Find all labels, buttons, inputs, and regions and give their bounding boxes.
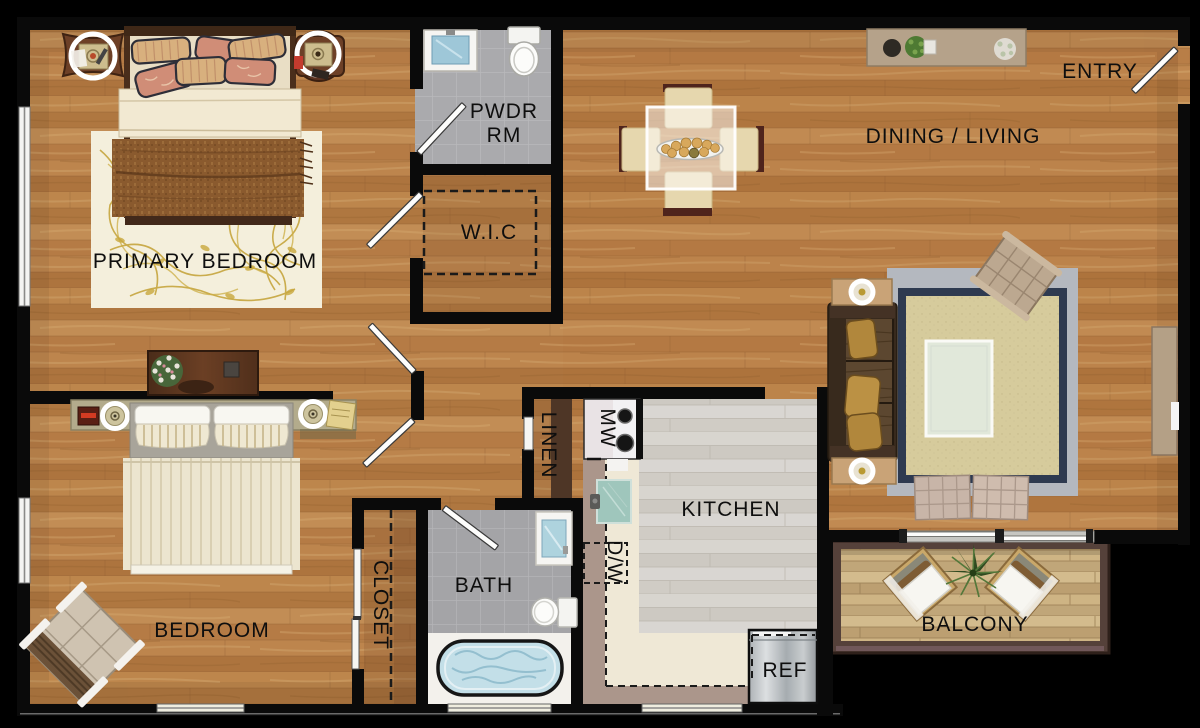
svg-text:BATH: BATH	[455, 574, 513, 597]
svg-text:BEDROOM: BEDROOM	[154, 619, 270, 642]
svg-text:RM: RM	[487, 124, 522, 147]
svg-text:ENTRY: ENTRY	[1062, 60, 1138, 83]
svg-text:REF: REF	[763, 659, 808, 682]
svg-text:W.I.C: W.I.C	[461, 221, 517, 244]
svg-text:D/W: D/W	[603, 540, 626, 584]
svg-text:KITCHEN: KITCHEN	[681, 498, 780, 521]
svg-text:DINING / LIVING: DINING / LIVING	[866, 125, 1041, 148]
svg-text:BALCONY: BALCONY	[921, 613, 1028, 636]
svg-text:MW: MW	[596, 408, 619, 447]
svg-text:CLOSET: CLOSET	[369, 560, 392, 650]
svg-text:PRIMARY BEDROOM: PRIMARY BEDROOM	[93, 250, 317, 273]
svg-text:PWDR: PWDR	[470, 100, 538, 123]
svg-text:LINEN: LINEN	[537, 412, 560, 479]
